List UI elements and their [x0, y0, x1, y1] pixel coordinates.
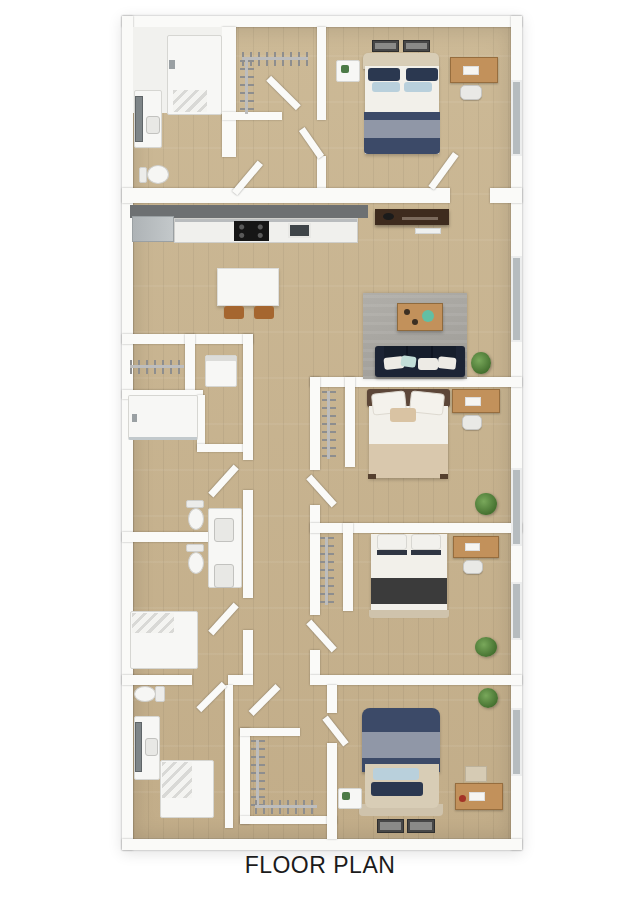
- window-living: [511, 256, 522, 342]
- bedroom3-chair: [463, 560, 483, 574]
- nightstand4-plant: [342, 792, 350, 800]
- bed3-pillow-right: [411, 534, 441, 550]
- bath1-toilet: [147, 165, 169, 184]
- bath4-shower-mat: [162, 762, 192, 798]
- bedroom2-desk-paper: [465, 397, 481, 406]
- wall-hall-left-c: [243, 630, 253, 675]
- utility-appliance: [205, 355, 237, 387]
- bed2-accent-pillow: [390, 408, 416, 422]
- bedroom4-desk-paper: [469, 792, 485, 801]
- bedroom1-art-right: [403, 40, 430, 52]
- bed4-pillow-navy: [371, 782, 423, 796]
- bed1-pillow-blue-left: [372, 82, 400, 92]
- bath4-mirror: [135, 722, 142, 772]
- bedroom4-desk-mug: [459, 795, 466, 802]
- wall-hall-left-a: [243, 334, 253, 460]
- nightstand1-plant: [341, 65, 349, 73]
- outer-wall-top: [122, 16, 522, 27]
- closet1-rail-left: [240, 60, 254, 114]
- wall-hall-right-c: [310, 650, 320, 675]
- wall-kitchen-north-right: [490, 188, 522, 203]
- bed1-pillow-navy-left: [368, 68, 400, 81]
- wall-bath-divider: [122, 532, 208, 542]
- wall-bath1-closet1: [222, 27, 236, 157]
- closet4-rail-bottom: [255, 800, 317, 814]
- wall-bottom-a: [122, 675, 192, 685]
- bedroom1-art-left: [372, 40, 399, 52]
- bedroom3-plant: [475, 637, 497, 657]
- closet3-rail: [320, 537, 334, 605]
- sofa-pillow-teal: [400, 355, 416, 368]
- bedroom4-art-right: [407, 819, 435, 833]
- bed3-base: [369, 610, 449, 618]
- bed4-pillow-blue: [373, 768, 419, 780]
- bed3-pillow-left: [377, 534, 407, 550]
- floor-plan-image: [122, 16, 522, 850]
- console-speaker: [383, 213, 394, 220]
- bath4-sink: [145, 738, 158, 756]
- bedroom4-art-left: [377, 819, 404, 833]
- bed1-pillow-navy-right: [406, 68, 438, 81]
- wall-closet3-right: [343, 523, 353, 611]
- laundry-closet-rail: [130, 360, 184, 374]
- hall-toilet1-tank: [186, 500, 204, 508]
- wall-wc-bottom: [197, 444, 243, 452]
- wall-closet4-left: [240, 728, 250, 824]
- bedroom1-chair: [460, 85, 482, 100]
- wall-bedroom4-left-b: [327, 743, 337, 839]
- wall-bottom-b: [228, 675, 253, 685]
- wall-shower-right: [197, 395, 205, 450]
- upper-shower-faucet: [132, 414, 137, 422]
- wall-bath4-right: [225, 685, 233, 828]
- coffee-table-plate: [422, 310, 434, 322]
- floor-plan-title: FLOOR PLAN: [0, 852, 640, 879]
- dining-chair-right: [254, 306, 274, 319]
- coffee-table: [397, 303, 443, 331]
- floor-vent: [415, 228, 441, 234]
- window-bedroom1: [511, 80, 522, 156]
- hall-vanity-sink-upper: [214, 518, 234, 542]
- wall-closet4-top: [240, 728, 300, 736]
- bedroom4-plant: [478, 688, 498, 708]
- wall-kitchen-north-left: [122, 188, 450, 203]
- bedroom3-desk-paper: [465, 543, 480, 551]
- sofa-pillow-2: [418, 358, 438, 370]
- shower-mat: [173, 90, 207, 112]
- bedroom2-chair: [462, 415, 482, 430]
- bed2-foot-right: [440, 474, 448, 479]
- bath1-mirror: [135, 96, 143, 142]
- hall-toilet1: [188, 508, 204, 530]
- bed3-blanket: [371, 578, 447, 604]
- dining-chair-left: [224, 306, 244, 319]
- closet4-rail-left: [251, 740, 265, 808]
- coffee-table-item-2: [412, 319, 418, 325]
- refrigerator: [132, 216, 174, 242]
- kitchen-sink: [288, 223, 311, 238]
- wall-bedroom3-south: [310, 675, 522, 685]
- hall-toilet2: [188, 552, 204, 574]
- bed3-pillow-trim-right: [411, 550, 441, 555]
- dining-table: [217, 268, 279, 306]
- wall-hall-right-b: [310, 505, 320, 615]
- bath1-toilet-tank: [139, 167, 147, 183]
- bed1-pillow-blue-right: [404, 82, 432, 92]
- bath4-toilet-tank: [155, 686, 165, 702]
- bedroom1-desk-paper: [463, 66, 479, 75]
- window-bedroom3: [511, 582, 522, 640]
- window-bedroom4: [511, 708, 522, 776]
- outer-wall-bottom: [122, 839, 522, 850]
- sofa-pillow-3: [437, 356, 456, 370]
- wall-hall-right-a: [310, 377, 320, 470]
- hall-vanity-sink-lower: [214, 564, 234, 588]
- bed2-blanket: [369, 444, 448, 478]
- wall-bedroom1-left-lower: [317, 156, 326, 188]
- bed1-duvet-stripe: [364, 120, 440, 138]
- bath4-toilet: [134, 686, 156, 702]
- living-plant: [471, 352, 491, 374]
- wall-bedroom1-left-upper: [317, 27, 326, 120]
- upper-walk-in-shower: [128, 395, 198, 440]
- wall-laundry-divider: [185, 334, 195, 390]
- wall-bedroom2-bedroom3: [310, 523, 522, 533]
- wall-hall-left-b: [243, 490, 253, 598]
- bed3-pillow-trim-left: [377, 550, 407, 555]
- coffee-table-item-1: [404, 309, 410, 315]
- console-shelf-line: [402, 217, 438, 220]
- bed2-foot-left: [368, 474, 376, 479]
- hall-toilet2-tank: [186, 544, 204, 552]
- window-bedroom2: [511, 468, 522, 546]
- tub-faucet: [169, 60, 175, 69]
- wall-closet4-bottom: [240, 816, 337, 824]
- bedroom4-printer-box: [465, 766, 487, 782]
- cooktop: [234, 221, 269, 241]
- lower-shower-mat: [132, 613, 174, 633]
- wall-closet2-right: [345, 377, 355, 467]
- bedroom2-plant: [475, 493, 497, 515]
- closet2-rail: [322, 391, 336, 459]
- bath1-sink: [146, 116, 160, 134]
- bed4-duvet-stripe: [362, 732, 440, 758]
- wall-bedroom4-left-a: [327, 685, 337, 713]
